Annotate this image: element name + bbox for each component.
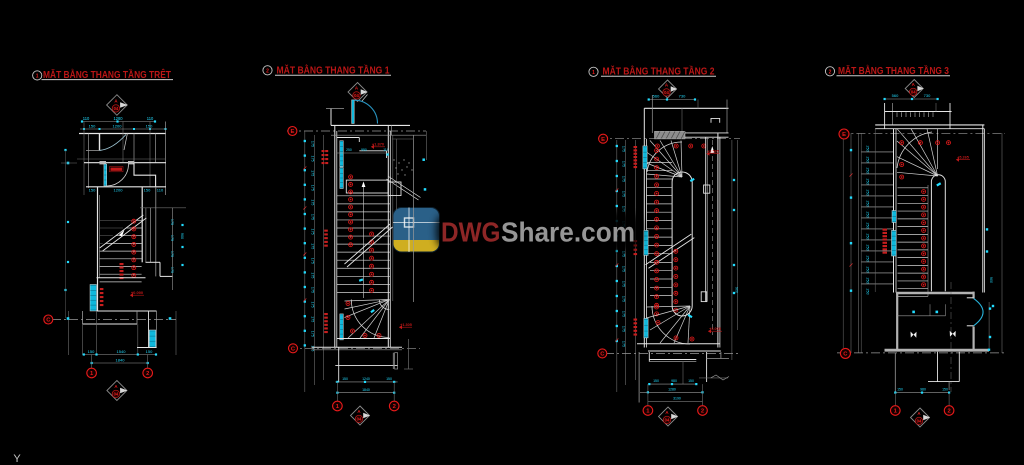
svg-text:175: 175 bbox=[170, 251, 174, 257]
svg-text:175: 175 bbox=[311, 243, 315, 249]
svg-text:250: 250 bbox=[866, 289, 870, 295]
svg-text:250: 250 bbox=[866, 190, 870, 196]
svg-text:150: 150 bbox=[146, 349, 153, 354]
svg-text:MẶT BẰNG THANG TẦNG 2: MẶT BẰNG THANG TẦNG 2 bbox=[603, 65, 715, 78]
svg-text:MẶT BẰNG THANG TẦNG TRỆT: MẶT BẰNG THANG TẦNG TRỆT bbox=[43, 68, 171, 81]
svg-text:2: 2 bbox=[947, 409, 950, 415]
svg-text:175: 175 bbox=[311, 170, 315, 176]
svg-text:175: 175 bbox=[622, 206, 626, 212]
svg-text:DWG: DWG bbox=[441, 217, 501, 248]
svg-text:E: E bbox=[290, 129, 294, 135]
svg-text:730: 730 bbox=[924, 93, 931, 98]
svg-text:250: 250 bbox=[866, 245, 870, 251]
svg-text:175: 175 bbox=[311, 302, 315, 308]
svg-text:175: 175 bbox=[170, 267, 174, 273]
svg-text:1200: 1200 bbox=[113, 124, 123, 129]
svg-text:MẶT BẰNG THANG TẦNG 3: MẶT BẰNG THANG TẦNG 3 bbox=[838, 64, 949, 77]
svg-text:175: 175 bbox=[311, 185, 315, 191]
svg-text:Y: Y bbox=[13, 453, 21, 465]
svg-text:A: A bbox=[665, 82, 669, 87]
svg-text:175: 175 bbox=[622, 146, 626, 152]
svg-text:1840: 1840 bbox=[362, 388, 370, 392]
svg-text:175: 175 bbox=[622, 251, 626, 257]
svg-text:250: 250 bbox=[866, 278, 870, 284]
svg-text:E: E bbox=[842, 132, 846, 138]
svg-text:250: 250 bbox=[866, 234, 870, 240]
svg-text:560: 560 bbox=[653, 94, 660, 99]
svg-text:250: 250 bbox=[866, 212, 870, 218]
svg-text:E: E bbox=[601, 137, 605, 143]
svg-text:250: 250 bbox=[866, 157, 870, 163]
svg-text:175: 175 bbox=[311, 272, 315, 278]
svg-text:900: 900 bbox=[735, 287, 739, 293]
svg-text:1: 1 bbox=[36, 74, 39, 80]
svg-text:150: 150 bbox=[897, 388, 903, 392]
svg-text:175: 175 bbox=[311, 214, 315, 220]
svg-text:175: 175 bbox=[622, 311, 626, 317]
svg-text:175: 175 bbox=[311, 199, 315, 205]
svg-text:04: 04 bbox=[114, 106, 119, 111]
svg-text:150: 150 bbox=[688, 379, 694, 383]
svg-text:04: 04 bbox=[664, 90, 669, 95]
svg-text:2: 2 bbox=[146, 371, 149, 377]
svg-text:150: 150 bbox=[653, 379, 659, 383]
svg-text:175: 175 bbox=[311, 229, 315, 235]
svg-text:A: A bbox=[912, 82, 916, 87]
svg-text:250: 250 bbox=[866, 201, 870, 207]
svg-text:1200: 1200 bbox=[114, 188, 124, 193]
svg-text:175: 175 bbox=[622, 266, 626, 272]
svg-text:900: 900 bbox=[989, 277, 993, 283]
svg-text:04: 04 bbox=[357, 417, 362, 422]
svg-text:175: 175 bbox=[311, 331, 315, 337]
svg-text:175: 175 bbox=[622, 341, 626, 347]
svg-text:04: 04 bbox=[911, 90, 916, 95]
svg-text:250: 250 bbox=[866, 179, 870, 185]
svg-text:175: 175 bbox=[622, 326, 626, 332]
svg-text:A: A bbox=[355, 85, 359, 90]
svg-text:2: 2 bbox=[266, 69, 269, 75]
svg-text:04: 04 bbox=[354, 93, 359, 98]
svg-text:175: 175 bbox=[622, 191, 626, 197]
svg-text:175: 175 bbox=[311, 316, 315, 322]
svg-text:A: A bbox=[357, 409, 361, 414]
svg-text:250: 250 bbox=[866, 223, 870, 229]
svg-text:175: 175 bbox=[170, 219, 174, 225]
svg-text:A: A bbox=[665, 410, 669, 415]
svg-text:175: 175 bbox=[622, 296, 626, 302]
svg-text:150: 150 bbox=[88, 349, 95, 354]
svg-text:2: 2 bbox=[393, 404, 396, 410]
svg-text:110: 110 bbox=[147, 116, 154, 121]
svg-text:A: A bbox=[917, 411, 921, 416]
svg-text:730: 730 bbox=[679, 94, 686, 99]
svg-text:1540: 1540 bbox=[117, 349, 127, 354]
svg-text:990: 990 bbox=[361, 148, 367, 152]
svg-text:04: 04 bbox=[665, 418, 670, 423]
svg-text:2: 2 bbox=[829, 70, 832, 76]
svg-text:1840: 1840 bbox=[116, 358, 126, 363]
svg-text:175: 175 bbox=[622, 176, 626, 182]
svg-text:250: 250 bbox=[866, 256, 870, 262]
svg-text:250: 250 bbox=[346, 148, 352, 152]
svg-text:250: 250 bbox=[866, 146, 870, 152]
svg-text:175: 175 bbox=[311, 258, 315, 264]
svg-text:1280: 1280 bbox=[668, 387, 676, 391]
svg-text:1: 1 bbox=[592, 70, 595, 76]
svg-text:250: 250 bbox=[866, 267, 870, 273]
svg-text:175: 175 bbox=[311, 156, 315, 162]
svg-text:1240: 1240 bbox=[362, 377, 370, 381]
svg-text:MẶT BẰNG THANG TẦNG 1: MẶT BẰNG THANG TẦNG 1 bbox=[277, 64, 390, 77]
svg-text:150: 150 bbox=[89, 188, 96, 193]
svg-text:175: 175 bbox=[622, 161, 626, 167]
svg-text:980: 980 bbox=[920, 388, 926, 392]
svg-text:560: 560 bbox=[892, 93, 899, 98]
svg-text:175: 175 bbox=[311, 287, 315, 293]
svg-text:04: 04 bbox=[917, 419, 922, 424]
svg-text:110: 110 bbox=[157, 188, 164, 193]
svg-text:175: 175 bbox=[622, 281, 626, 287]
svg-text:04: 04 bbox=[114, 392, 119, 397]
svg-text:250: 250 bbox=[866, 168, 870, 174]
svg-text:110: 110 bbox=[83, 116, 90, 121]
svg-text:150: 150 bbox=[386, 377, 392, 381]
svg-text:Share.com: Share.com bbox=[501, 217, 635, 248]
svg-text:900: 900 bbox=[180, 233, 184, 239]
svg-text:980: 980 bbox=[671, 379, 677, 383]
svg-text:A: A bbox=[114, 98, 118, 103]
svg-text:150: 150 bbox=[942, 388, 948, 392]
svg-text:175: 175 bbox=[170, 235, 174, 241]
svg-text:150: 150 bbox=[144, 188, 151, 193]
svg-text:2: 2 bbox=[701, 409, 704, 415]
svg-text:1280: 1280 bbox=[113, 116, 123, 121]
svg-text:3190: 3190 bbox=[673, 397, 681, 401]
svg-text:150: 150 bbox=[146, 124, 153, 129]
svg-text:150: 150 bbox=[342, 377, 348, 381]
svg-text:A: A bbox=[114, 384, 118, 389]
svg-text:175: 175 bbox=[311, 141, 315, 147]
svg-text:150: 150 bbox=[89, 124, 96, 129]
